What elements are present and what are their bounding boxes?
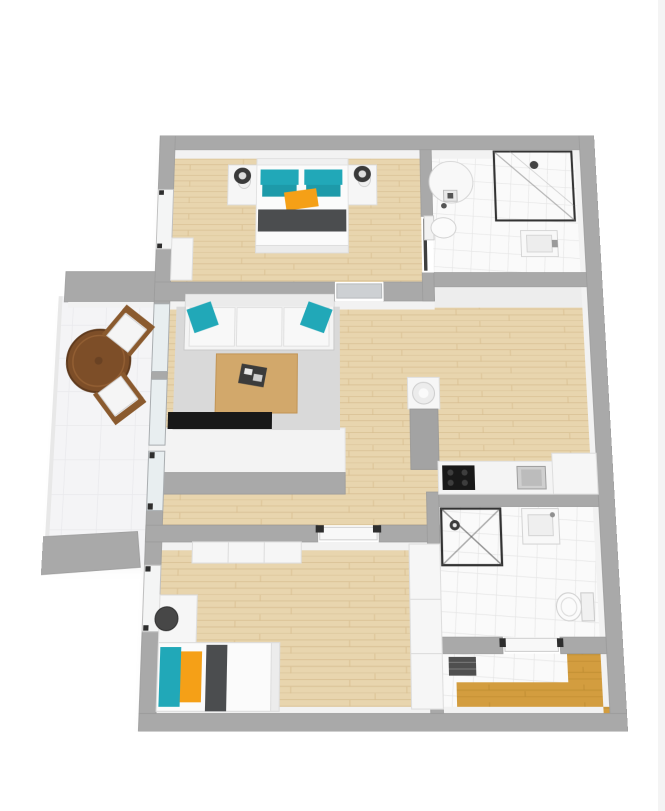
wardrobe-north [192, 542, 301, 563]
bed2-pillow-teal [158, 647, 181, 707]
balcony-wall-stub-top-face [68, 302, 166, 308]
tv-wall-cap [147, 473, 345, 495]
shower-bathroom1 [494, 152, 575, 221]
balcony-door [147, 451, 165, 510]
bed2-blanket [205, 645, 228, 711]
outer-wall-bottom [138, 714, 628, 732]
outer-wall-left-a [158, 136, 175, 190]
screenshot-canvas [0, 0, 665, 811]
balcony-window-2 [149, 379, 167, 445]
window-hinge [145, 566, 150, 571]
single-bed [156, 643, 280, 712]
window-hinge [143, 625, 148, 630]
wall-bedroom2-north-west [145, 525, 317, 542]
outer-wall-left-f [139, 632, 159, 714]
wall-bedroom1-bathroom1-b [422, 273, 434, 301]
bedroom1-door-leaf [337, 284, 382, 298]
stool [155, 607, 179, 631]
sink-bathroom2 [522, 509, 560, 544]
floor-plan [32, 136, 628, 732]
bed-pillow-teal [260, 169, 298, 184]
window-hinge [159, 190, 164, 195]
bed-pillow-teal [304, 169, 342, 184]
door-hinge [373, 525, 381, 532]
wall-bathroom2-south-west [442, 637, 503, 653]
tv [168, 412, 272, 429]
bed2-footboard [271, 643, 280, 712]
shower-bathroom2 [441, 509, 502, 566]
bed2-pillow-orange [180, 651, 202, 702]
sofa [184, 294, 334, 350]
door-hinge [499, 638, 506, 647]
bedroom2-door-leaf [320, 527, 377, 540]
outer-wall-top [160, 136, 595, 150]
cooktop [442, 465, 475, 490]
sofa-cushion [236, 308, 282, 346]
toilet-bathroom2 [556, 593, 595, 621]
double-bed [256, 159, 349, 253]
door-hinge [316, 525, 324, 532]
window-hinge [157, 244, 162, 249]
wall-bathroom2-south-east [560, 637, 607, 653]
bedroom1-window [156, 189, 173, 249]
wall-bathroom1-south [434, 273, 587, 287]
balcony-wall-stub-bottom [32, 531, 142, 575]
tv-wall-face [148, 428, 345, 475]
bathroom2-door-leaf [505, 638, 559, 651]
corridor-floor [162, 494, 346, 525]
balcony-window-1 [152, 304, 170, 372]
bed-blanket [258, 209, 347, 231]
hall-floor [340, 301, 597, 463]
fridge [552, 453, 599, 494]
door-hinge [148, 503, 153, 509]
hall-floor-south [340, 463, 439, 525]
image-right-edge-strip [658, 0, 665, 811]
door-hinge [557, 638, 564, 647]
doormat [449, 657, 477, 676]
outer-wall-left-c [151, 371, 167, 379]
dresser-bedroom1 [171, 238, 194, 280]
coffee-table [215, 354, 297, 413]
kitchen-sink-basin [521, 469, 542, 485]
door-hinge [149, 452, 154, 458]
utility-column [407, 377, 441, 469]
faucet [552, 240, 558, 247]
floor-plan-container [32, 136, 628, 732]
bed-footboard [256, 245, 349, 252]
bathroom1-south-wall-face [434, 287, 588, 308]
wardrobe-east [409, 544, 443, 709]
sink-bathroom1 [521, 231, 559, 257]
